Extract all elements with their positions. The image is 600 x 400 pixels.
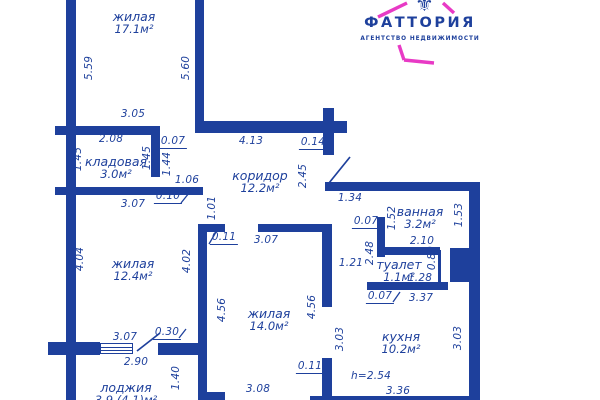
- dimension-label: 4.56: [306, 295, 318, 319]
- dimension-label: 0.14: [299, 136, 327, 150]
- dimension-label: 0.07: [352, 215, 380, 229]
- room-area: 12.4м²: [112, 270, 155, 283]
- room-area: 14.0м²: [248, 320, 291, 333]
- dimension-label: 3.07: [121, 198, 145, 210]
- dimension-label: 1.40: [170, 366, 182, 390]
- dimension-label: 2.45: [297, 164, 309, 188]
- dimension-label: 3.07: [254, 234, 278, 246]
- dimension-label: 0.10: [154, 190, 182, 204]
- dimension-label: 3.03: [334, 327, 346, 351]
- dimension-label: 3.07: [113, 331, 137, 343]
- agency-logo: ⚜ ФАТТОРИЯ АГЕНТСТВО НЕДВИЖИМОСТИ: [345, 0, 495, 70]
- dimension-label: 0.07: [366, 290, 394, 304]
- dimension-label: 1.45: [141, 146, 153, 170]
- dimension-label: 4.13: [239, 135, 263, 147]
- dimension-label: 1.53: [453, 203, 465, 227]
- room-area: 17.1м²: [113, 23, 156, 36]
- dimension-label: 1.21: [339, 257, 363, 269]
- room-area: 12.2м²: [232, 182, 287, 195]
- dimension-label: 0.30: [153, 326, 181, 340]
- dimension-label: 1.06: [175, 174, 199, 186]
- dimension-label: 1.01: [206, 196, 218, 220]
- room-label: коридор12.2м²: [232, 169, 287, 195]
- room-area: 10.2м²: [382, 343, 421, 356]
- dimension-label: 5.60: [180, 56, 192, 80]
- room-label: жилая14.0м²: [248, 307, 291, 333]
- dimension-label: 3.36: [386, 385, 410, 397]
- fleur-ornament-icon: ⚜: [415, 0, 434, 16]
- room-label: жилая12.4м²: [112, 257, 155, 283]
- room-area: 3.2м²: [397, 218, 444, 231]
- room-label: ванная3.2м²: [397, 205, 444, 231]
- dimension-label: 1.45: [72, 147, 84, 171]
- dimension-label: 0.11: [210, 231, 238, 245]
- dimension-label: 4.02: [181, 249, 193, 273]
- room-label: лоджия3.9 (4.1)м²: [95, 381, 158, 400]
- room-label: кухня10.2м²: [382, 330, 421, 356]
- dimension-label: 4.56: [216, 298, 228, 322]
- dimension-label: 1.34: [338, 192, 362, 204]
- dimension-label: 0.89: [426, 246, 438, 270]
- room-area: 3.0м²: [85, 168, 147, 181]
- dimension-label: 3.08: [246, 383, 270, 395]
- floorplan-labels: жилая17.1м²кладовая3.0м²коридор12.2м²жил…: [0, 0, 600, 400]
- room-area: 3.9 (4.1)м²: [95, 394, 158, 400]
- dimension-label: 3.37: [409, 292, 433, 304]
- room-label: кладовая3.0м²: [85, 155, 147, 181]
- dimension-label: 2.48: [364, 241, 376, 265]
- dimension-label: 2.08: [99, 133, 123, 145]
- floorplan-canvas: жилая17.1м²кладовая3.0м²коридор12.2м²жил…: [0, 0, 600, 400]
- dimension-label: 5.59: [83, 56, 95, 80]
- dimension-label: 4.04: [74, 247, 86, 271]
- dimension-label: 1.52: [386, 206, 398, 230]
- room-label: жилая17.1м²: [113, 10, 156, 36]
- dimension-label: 0.11: [296, 360, 324, 374]
- logo-brand-text: ФАТТОРИЯ: [345, 15, 495, 31]
- dimension-label: 2.90: [124, 356, 148, 368]
- logo-tagline-text: АГЕНТСТВО НЕДВИЖИМОСТИ: [345, 36, 495, 42]
- dimension-label: h=2.54: [351, 370, 391, 382]
- dimension-label: 1.28: [408, 272, 432, 284]
- dimension-label: 3.03: [452, 326, 464, 350]
- dimension-label: 0.07: [159, 135, 187, 149]
- dimension-label: 1.44: [161, 152, 173, 176]
- dimension-label: 3.05: [121, 108, 145, 120]
